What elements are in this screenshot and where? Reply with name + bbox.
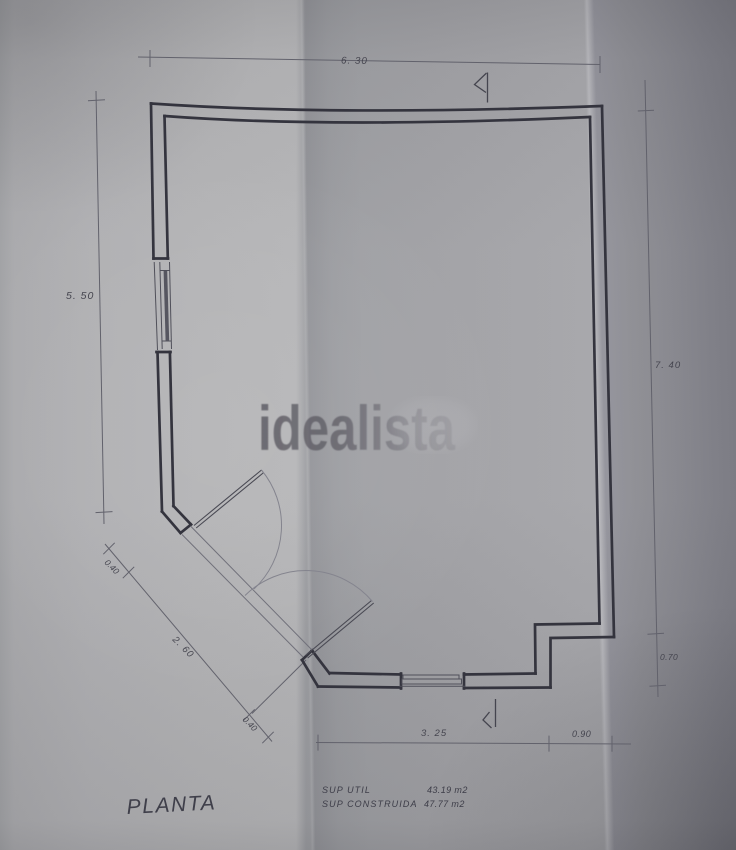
svg-text:6. 30: 6. 30 <box>341 56 368 67</box>
svg-text:0.70: 0.70 <box>660 652 678 662</box>
svg-text:0.40: 0.40 <box>241 714 260 733</box>
svg-text:7. 40: 7. 40 <box>655 360 681 371</box>
svg-text:5. 50: 5. 50 <box>66 290 94 302</box>
svg-text:43.19 m2: 43.19 m2 <box>427 785 468 795</box>
svg-text:3. 25: 3. 25 <box>421 728 447 739</box>
svg-text:SUP CONSTRUIDA: SUP CONSTRUIDA <box>322 799 418 809</box>
svg-text:47.77 m2: 47.77 m2 <box>424 799 465 809</box>
svg-text:0.90: 0.90 <box>572 729 591 739</box>
svg-text:SUP UTIL: SUP UTIL <box>322 785 371 795</box>
svg-text:PLANTA: PLANTA <box>126 791 217 819</box>
